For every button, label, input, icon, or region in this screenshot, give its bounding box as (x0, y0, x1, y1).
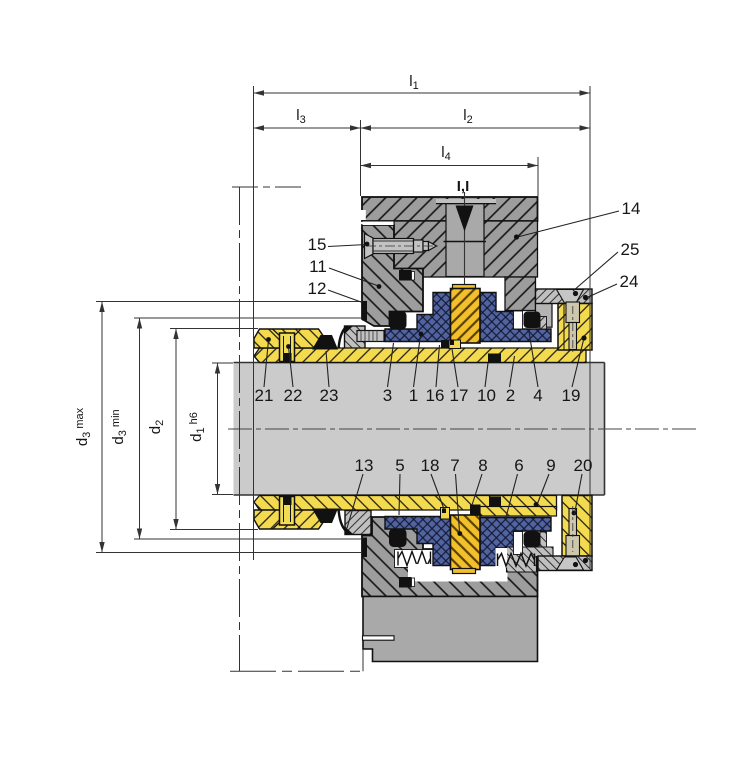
svg-text:7: 7 (450, 456, 459, 475)
svg-text:15: 15 (308, 235, 327, 254)
svg-text:1: 1 (409, 386, 418, 405)
svg-text:3: 3 (383, 386, 392, 405)
svg-text:20: 20 (574, 456, 593, 475)
svg-text:5: 5 (395, 456, 404, 475)
svg-text:18: 18 (421, 456, 440, 475)
svg-text:I,I: I,I (457, 178, 470, 195)
svg-text:10: 10 (477, 386, 496, 405)
svg-text:2: 2 (506, 386, 515, 405)
svg-text:12: 12 (308, 279, 327, 298)
svg-text:23: 23 (320, 386, 339, 405)
svg-text:14: 14 (622, 199, 641, 218)
svg-text:4: 4 (533, 386, 542, 405)
svg-text:8: 8 (478, 456, 487, 475)
svg-text:6: 6 (514, 456, 523, 475)
svg-text:25: 25 (621, 240, 640, 259)
svg-text:11: 11 (309, 257, 327, 276)
svg-text:13: 13 (355, 456, 374, 475)
svg-text:24: 24 (620, 272, 639, 291)
svg-text:16: 16 (426, 386, 445, 405)
svg-text:22: 22 (284, 386, 303, 405)
svg-text:19: 19 (562, 386, 581, 405)
svg-text:21: 21 (255, 386, 274, 405)
svg-text:9: 9 (546, 456, 555, 475)
svg-text:17: 17 (450, 386, 469, 405)
